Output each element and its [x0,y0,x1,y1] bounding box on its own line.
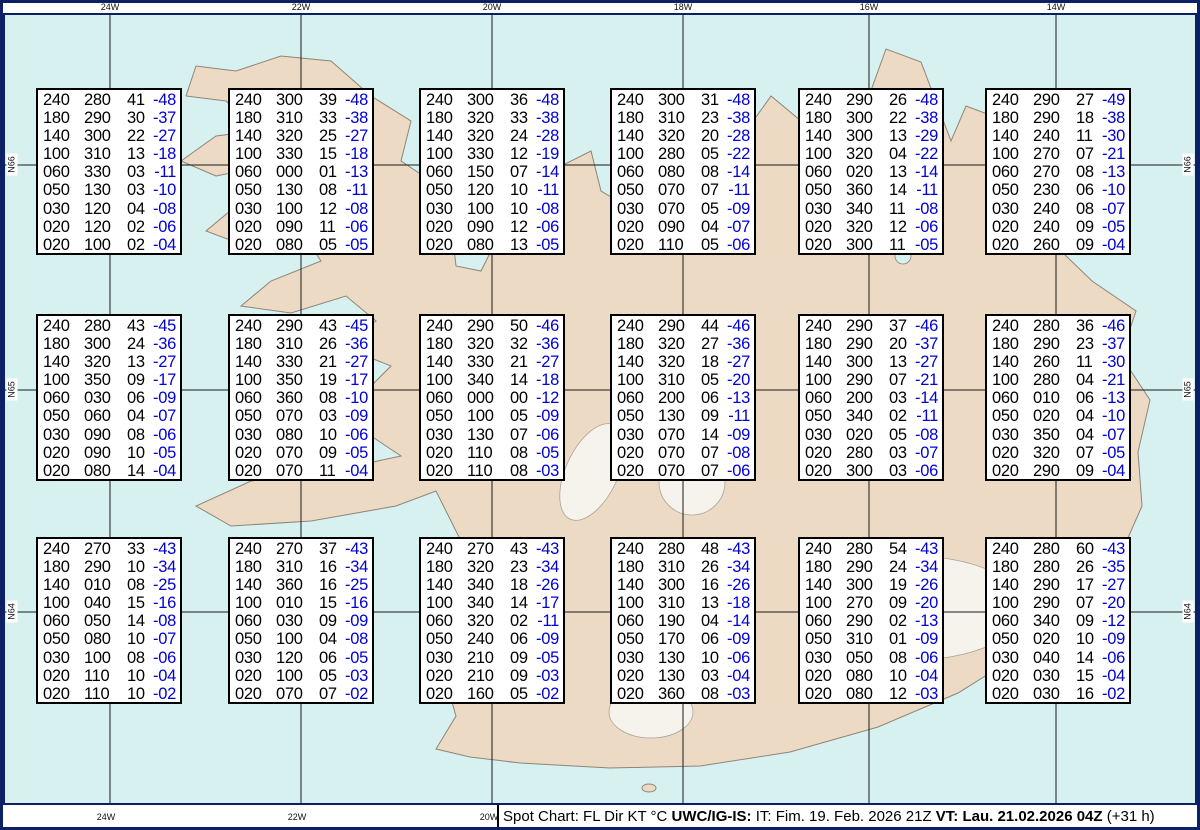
fl-value: 240 [617,91,649,109]
spot-row: 02030011-05 [805,236,942,254]
dir-value: 280 [1033,558,1065,576]
kt-value: 02 [889,407,912,425]
kt-value: 05 [510,407,533,425]
fl-value: 100 [235,371,267,389]
fl-value: 020 [43,462,75,480]
dir-value: 260 [1033,353,1065,371]
spot-row: 14024011-30 [992,127,1129,145]
island-heimaey [642,784,656,792]
kt-value: 03 [127,163,150,181]
kt-value: 08 [319,181,342,199]
dir-value: 320 [846,145,878,163]
kt-value: 43 [510,540,533,558]
spot-row: 14032025-27 [235,127,372,145]
fl-value: 020 [426,667,458,685]
fl-value: 180 [992,558,1024,576]
dir-value: 270 [1033,163,1065,181]
kt-value: 16 [319,558,342,576]
dir-value: 080 [276,426,308,444]
dir-value: 120 [467,181,499,199]
fl-value: 050 [992,630,1024,648]
temp-value: -11 [724,181,754,199]
temp-value: -25 [342,576,372,594]
fl-value: 240 [617,317,649,335]
spot-row: 03010010-08 [426,200,563,218]
kt-value: 11 [889,236,912,254]
dir-value: 070 [276,685,308,703]
dir-value: 310 [276,109,308,127]
fl-value: 030 [805,649,837,667]
kt-value: 04 [127,200,150,218]
dir-value: 290 [1033,109,1065,127]
spot-row: 06000001-13 [235,163,372,181]
kt-value: 11 [889,200,912,218]
spot-row: 05036014-11 [805,181,942,199]
temp-value: -09 [150,389,180,407]
kt-value: 13 [127,145,150,163]
spot-row: 02009011-06 [235,218,372,236]
spot-row: 18031026-34 [617,558,754,576]
fl-value: 240 [805,91,837,109]
kt-value: 22 [127,127,150,145]
dir-value: 090 [658,218,690,236]
dir-value: 020 [1033,407,1065,425]
kt-value: 06 [1076,181,1099,199]
dir-value: 020 [846,426,878,444]
spot-row: 14030022-27 [43,127,180,145]
fl-value: 240 [992,91,1024,109]
latitude-label-left: N64 [7,601,18,623]
kt-value: 04 [1076,407,1099,425]
dir-value: 300 [846,462,878,480]
kt-value: 26 [701,558,724,576]
spot-row: 14032013-27 [43,353,180,371]
kt-value: 14 [127,612,150,630]
kt-value: 06 [510,630,533,648]
temp-value: -48 [150,91,180,109]
spot-row: 18030022-38 [805,109,942,127]
status-valid-time: VT: Lau. 21.02.2026 04Z [936,808,1103,825]
dir-value: 310 [658,594,690,612]
dir-value: 280 [1033,371,1065,389]
spot-row: 10035019-17 [235,371,372,389]
temp-value: -03 [533,462,563,480]
fl-value: 180 [805,109,837,127]
dir-value: 310 [276,558,308,576]
fl-value: 060 [426,389,458,407]
dir-value: 300 [846,236,878,254]
temp-value: -45 [342,317,372,335]
temp-value: -26 [533,576,563,594]
fl-value: 030 [426,200,458,218]
kt-value: 04 [319,630,342,648]
spot-row: 02003015-04 [992,667,1129,685]
dir-value: 320 [658,335,690,353]
kt-value: 08 [319,389,342,407]
dir-value: 320 [846,218,878,236]
dir-value: 080 [276,236,308,254]
temp-value: -08 [342,200,372,218]
temp-value: -35 [1099,558,1129,576]
spot-row: 18029018-38 [992,109,1129,127]
dir-value: 070 [658,426,690,444]
fl-value: 100 [992,145,1024,163]
dir-value: 080 [658,163,690,181]
fl-value: 050 [426,630,458,648]
fl-value: 050 [805,407,837,425]
spot-row: 02032012-06 [805,218,942,236]
spot-row: 10031013-18 [617,594,754,612]
dir-value: 280 [1033,317,1065,335]
status-prefix: Spot Chart: FL Dir KT °C [503,808,672,825]
spot-row: 05023006-10 [992,181,1129,199]
spot-row: 24028041-48 [43,91,180,109]
spot-row: 06020006-13 [617,389,754,407]
fl-value: 240 [805,317,837,335]
dir-value: 240 [1033,218,1065,236]
temp-value: -36 [150,335,180,353]
spot-row: 02011008-05 [426,444,563,462]
kt-value: 04 [1076,371,1099,389]
dir-value: 320 [658,127,690,145]
dir-value: 290 [1033,462,1065,480]
dir-value: 170 [658,630,690,648]
kt-value: 07 [1076,444,1099,462]
kt-value: 08 [127,426,150,444]
dir-value: 000 [276,163,308,181]
fl-value: 050 [235,407,267,425]
dir-value: 200 [658,389,690,407]
spot-row: 06029002-13 [805,612,942,630]
dir-value: 120 [276,649,308,667]
dir-value: 360 [658,685,690,703]
dir-value: 330 [467,145,499,163]
temp-value: -27 [342,353,372,371]
kt-value: 09 [319,612,342,630]
spot-table-15: 24027043-4318032023-3414034018-261003401… [419,537,565,704]
fl-value: 100 [992,594,1024,612]
dir-value: 090 [84,444,116,462]
temp-value: -14 [724,163,754,181]
temp-value: -14 [912,163,942,181]
spot-row: 24029050-46 [426,317,563,335]
spot-row: 03013010-06 [617,649,754,667]
dir-value: 160 [467,685,499,703]
longitude-label-top: 14W [1041,2,1071,12]
spot-row: 06027008-13 [992,163,1129,181]
kt-value: 09 [1076,236,1099,254]
kt-value: 06 [1076,389,1099,407]
dir-value: 290 [846,335,878,353]
kt-value: 05 [701,145,724,163]
fl-value: 030 [426,649,458,667]
fl-value: 020 [43,218,75,236]
kt-value: 21 [319,353,342,371]
fl-value: 050 [43,630,75,648]
fl-value: 050 [426,181,458,199]
temp-value: -34 [724,558,754,576]
fl-value: 180 [235,335,267,353]
temp-value: -37 [912,335,942,353]
dir-value: 080 [467,236,499,254]
spot-row: 02028003-07 [805,444,942,462]
kt-value: 14 [889,181,912,199]
fl-value: 020 [805,667,837,685]
kt-value: 09 [701,407,724,425]
fl-value: 020 [992,444,1024,462]
dir-value: 280 [846,444,878,462]
kt-value: 41 [127,91,150,109]
fl-value: 240 [805,540,837,558]
spot-row: 05034002-11 [805,407,942,425]
dir-value: 110 [467,444,499,462]
kt-value: 24 [127,335,150,353]
fl-value: 060 [43,163,75,181]
kt-value: 07 [701,181,724,199]
kt-value: 08 [510,444,533,462]
temp-value: -38 [1099,109,1129,127]
temp-value: -06 [533,218,563,236]
fl-value: 030 [617,649,649,667]
kt-value: 04 [1076,426,1099,444]
fl-value: 060 [617,389,649,407]
dir-value: 280 [658,540,690,558]
spot-table-18: 24028060-4318028026-3514029017-271002900… [985,537,1131,704]
temp-value: -07 [150,407,180,425]
kt-value: 14 [1076,649,1099,667]
kt-value: 12 [889,218,912,236]
dir-value: 340 [467,371,499,389]
fl-value: 100 [426,594,458,612]
fl-value: 020 [992,667,1024,685]
temp-value: -22 [724,145,754,163]
fl-value: 020 [992,236,1024,254]
dir-value: 310 [276,335,308,353]
spot-row: 06003006-09 [43,389,180,407]
spot-row: 03007014-09 [617,426,754,444]
temp-value: -26 [912,576,942,594]
spot-row: 05013009-11 [617,407,754,425]
dir-value: 030 [84,389,116,407]
kt-value: 10 [319,426,342,444]
kt-value: 10 [1076,630,1099,648]
kt-value: 17 [1076,576,1099,594]
spot-row: 18031026-36 [235,335,372,353]
fl-value: 180 [43,109,75,127]
spot-row: 10034014-18 [426,371,563,389]
dir-value: 350 [276,371,308,389]
temp-value: -37 [1099,335,1129,353]
dir-value: 300 [846,109,878,127]
temp-value: -13 [1099,389,1129,407]
fl-value: 140 [235,576,267,594]
dir-value: 110 [467,462,499,480]
spot-row: 03010012-08 [235,200,372,218]
dir-value: 100 [276,667,308,685]
temp-value: -25 [150,576,180,594]
dir-value: 320 [467,109,499,127]
dir-value: 310 [658,371,690,389]
dir-value: 310 [846,630,878,648]
fl-value: 020 [992,462,1024,480]
spot-row: 18032023-34 [426,558,563,576]
kt-value: 07 [701,462,724,480]
dir-value: 350 [1033,426,1065,444]
fl-value: 030 [992,649,1024,667]
temp-value: -46 [1099,317,1129,335]
spot-row: 02007007-08 [617,444,754,462]
spot-row: 02007007-02 [235,685,372,703]
fl-value: 060 [235,612,267,630]
kt-value: 10 [127,685,150,703]
spot-row: 03002005-08 [805,426,942,444]
temp-value: -30 [1099,127,1129,145]
temp-value: -10 [1099,407,1129,425]
temp-value: -10 [342,389,372,407]
fl-value: 180 [617,558,649,576]
temp-value: -06 [150,218,180,236]
spot-row: 02011010-04 [43,667,180,685]
temp-value: -08 [912,426,942,444]
temp-value: -11 [912,407,942,425]
spot-row: 02008013-05 [426,236,563,254]
fl-value: 240 [43,540,75,558]
fl-value: 030 [426,426,458,444]
temp-value: -14 [912,389,942,407]
temp-value: -06 [724,649,754,667]
spot-row: 06002013-14 [805,163,942,181]
spot-row: 02030003-06 [805,462,942,480]
fl-value: 180 [617,109,649,127]
dir-value: 340 [467,594,499,612]
fl-value: 030 [805,426,837,444]
dir-value: 150 [467,163,499,181]
temp-value: -13 [1099,163,1129,181]
kt-value: 44 [701,317,724,335]
dir-value: 090 [467,218,499,236]
longitude-label-top: 20W [477,2,507,12]
temp-value: -43 [1099,540,1129,558]
fl-value: 050 [617,181,649,199]
spot-table-9: 24029050-4618032032-3614033021-271003401… [419,314,565,481]
spot-row: 24029044-46 [617,317,754,335]
temp-value: -46 [912,317,942,335]
dir-value: 290 [1033,594,1065,612]
longitude-label-top: 18W [668,2,698,12]
spot-table-11: 24029037-4618029020-3714030013-271002900… [798,314,944,481]
fl-value: 060 [992,163,1024,181]
dir-value: 070 [658,200,690,218]
spot-row: 18029030-37 [43,109,180,127]
dir-value: 110 [84,667,116,685]
spot-row: 02009010-05 [43,444,180,462]
spot-row: 24028043-45 [43,317,180,335]
spot-row: 03010008-06 [43,649,180,667]
dir-value: 290 [658,317,690,335]
kt-value: 22 [889,109,912,127]
fl-value: 030 [992,200,1024,218]
kt-value: 05 [701,200,724,218]
temp-value: -04 [1099,667,1129,685]
fl-value: 060 [235,389,267,407]
spot-row: 14033021-27 [235,353,372,371]
fl-value: 020 [43,667,75,685]
kt-value: 26 [889,91,912,109]
fl-value: 020 [235,236,267,254]
dir-value: 310 [84,145,116,163]
spot-row: 05013008-11 [235,181,372,199]
kt-value: 10 [127,558,150,576]
temp-value: -05 [533,444,563,462]
dir-value: 060 [84,407,116,425]
dir-value: 360 [276,389,308,407]
fl-value: 060 [617,612,649,630]
spot-row: 02009012-06 [426,218,563,236]
temp-value: -27 [1099,576,1129,594]
temp-value: -45 [150,317,180,335]
dir-value: 210 [467,649,499,667]
spot-row: 03007005-09 [617,200,754,218]
dir-value: 290 [846,317,878,335]
dir-value: 030 [1033,667,1065,685]
fl-value: 030 [235,649,267,667]
temp-value: -06 [342,218,372,236]
fl-value: 030 [617,426,649,444]
spot-row: 18031016-34 [235,558,372,576]
spot-row: 10001015-16 [235,594,372,612]
kt-value: 08 [701,685,724,703]
dir-value: 300 [467,91,499,109]
temp-value: -09 [1099,630,1129,648]
dir-value: 270 [1033,145,1065,163]
temp-value: -38 [724,109,754,127]
temp-value: -09 [533,630,563,648]
dir-value: 090 [276,218,308,236]
dir-value: 100 [276,200,308,218]
kt-value: 11 [1076,353,1099,371]
spot-row: 24028048-43 [617,540,754,558]
kt-value: 09 [1076,612,1099,630]
spot-row: 14030019-26 [805,576,942,594]
fl-value: 100 [805,371,837,389]
dir-value: 320 [467,612,499,630]
temp-value: -16 [342,594,372,612]
kt-value: 12 [510,218,533,236]
spot-table-2: 24030039-4818031033-3814032025-271003301… [228,88,374,255]
kt-value: 07 [510,426,533,444]
spot-table-5: 24029026-4818030022-3814030013-291003200… [798,88,944,255]
dir-value: 270 [276,540,308,558]
temp-value: -06 [150,649,180,667]
spot-row: 10033015-18 [235,145,372,163]
spot-row: 06033003-11 [43,163,180,181]
kt-value: 07 [889,371,912,389]
temp-value: -48 [912,91,942,109]
spot-row: 03034011-08 [805,200,942,218]
fl-value: 060 [805,163,837,181]
temp-value: -43 [150,540,180,558]
temp-value: -04 [150,236,180,254]
temp-value: -11 [724,407,754,425]
spot-row: 14032020-28 [617,127,754,145]
fl-value: 030 [43,200,75,218]
temp-value: -48 [342,91,372,109]
spot-row: 03021009-05 [426,649,563,667]
spot-row: 05017006-09 [617,630,754,648]
temp-value: -08 [724,444,754,462]
spot-table-4: 24030031-4818031023-3814032020-281002800… [610,88,756,255]
kt-value: 15 [319,594,342,612]
